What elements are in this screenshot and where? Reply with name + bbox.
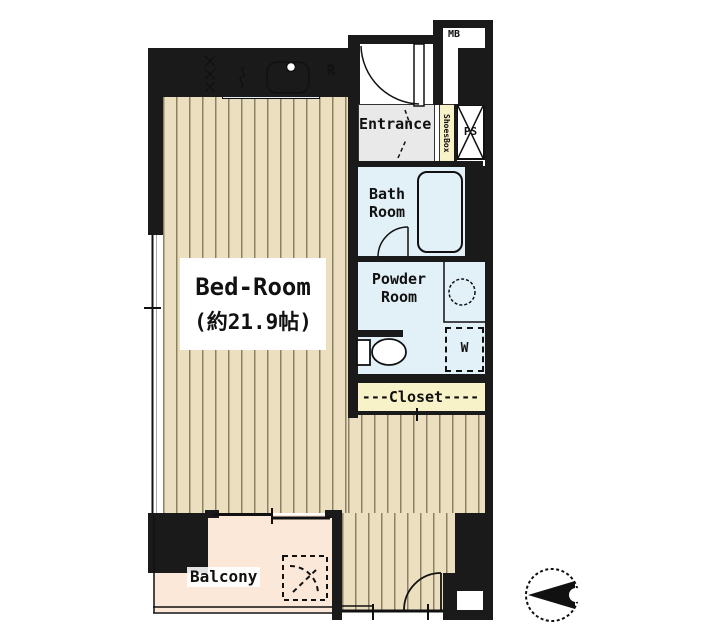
bedroom-label-box: Bed-Room (約21.9帖) — [180, 258, 326, 350]
wall — [443, 573, 457, 620]
wall — [325, 510, 342, 518]
wall — [348, 35, 360, 104]
shoes-box-text: ShoesBox — [442, 114, 451, 153]
left-window — [144, 235, 161, 513]
powder-label: Powder Room — [360, 268, 438, 308]
wall — [465, 166, 487, 262]
wall — [148, 48, 163, 235]
wall — [348, 256, 485, 262]
refrigerator-label: R — [317, 56, 345, 86]
wall-niche — [457, 591, 483, 610]
bathtub-icon — [417, 171, 463, 253]
bedroom-name: Bed-Room — [195, 274, 311, 302]
meter-box-label: MB — [448, 29, 460, 41]
pipe-shaft-text: PS — [463, 126, 478, 139]
wall — [348, 161, 483, 167]
wall — [148, 513, 208, 573]
powder-label-line1: Powder — [372, 270, 426, 288]
shoes-box-label: ShoesBox — [439, 104, 454, 162]
wall — [348, 374, 485, 383]
entrance-room — [358, 104, 435, 164]
bath-label-line2: Room — [369, 203, 405, 221]
corridor-floor-lower — [342, 513, 455, 610]
wall — [433, 20, 493, 28]
entrance-door — [361, 44, 424, 106]
balcony-label: Balcony — [187, 567, 260, 587]
compass-icon — [526, 569, 583, 621]
wall — [350, 35, 435, 44]
wall — [205, 510, 219, 518]
wall — [355, 330, 403, 337]
powder-label-line2: Room — [381, 288, 417, 306]
bath-label: Bath Room — [358, 183, 416, 223]
pipe-shaft-label: PS — [456, 104, 485, 160]
washer-label: W — [445, 327, 484, 372]
wall — [433, 20, 443, 105]
entrance-label: Entrance — [359, 116, 431, 133]
bedroom-size: (約21.9帖) — [194, 310, 312, 334]
bath-label-line1: Bath — [369, 185, 405, 203]
closet-label: ---Closet---- — [356, 383, 485, 412]
corridor-floor-upper — [348, 415, 485, 513]
wall — [458, 48, 487, 105]
floor-plan: Bed-Room (約21.9帖) Entrance Bath Room Pow… — [0, 0, 720, 640]
wall — [332, 513, 342, 620]
